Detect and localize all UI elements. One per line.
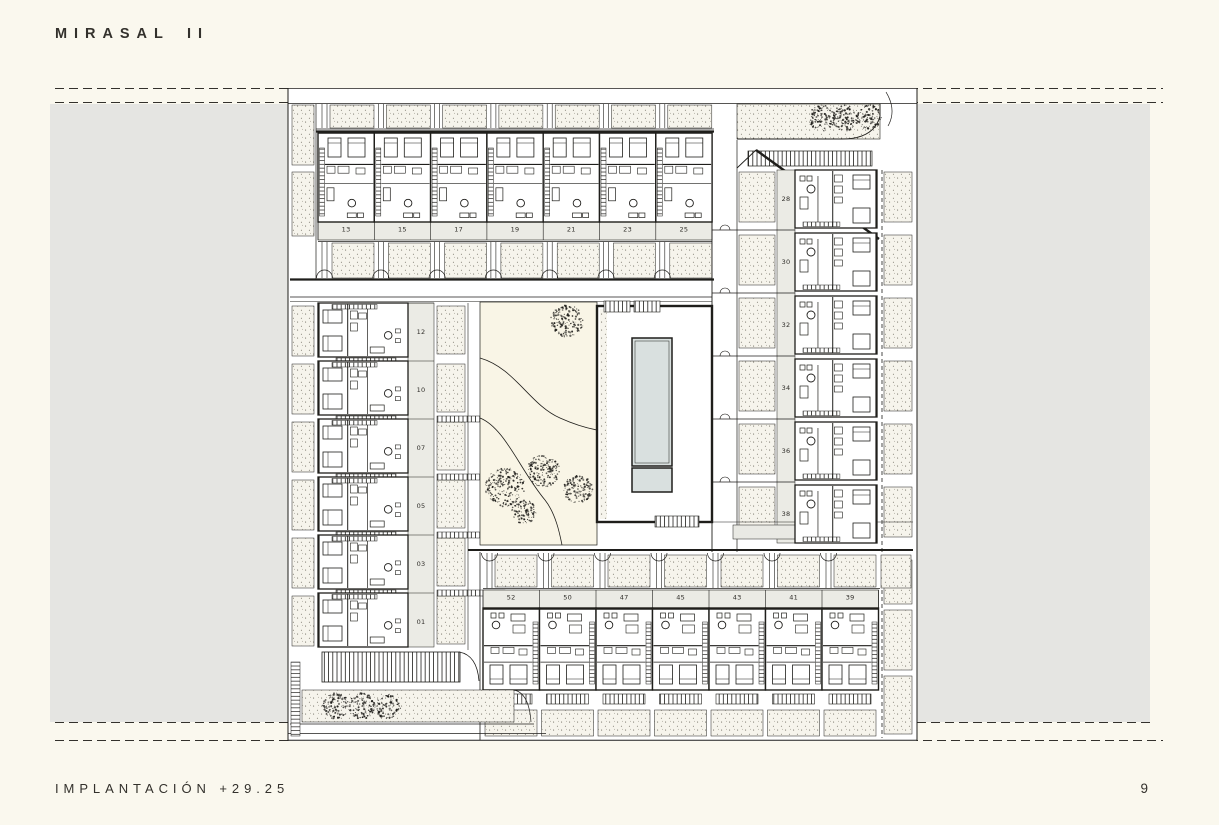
- unit-number-label: 45: [676, 594, 685, 602]
- garden-patch: [884, 361, 912, 411]
- unit-number-label: 52: [507, 594, 516, 602]
- garden-patch: [330, 105, 374, 128]
- garden-patch: [499, 105, 543, 128]
- stair-strip: [655, 516, 699, 527]
- garden-patch: [437, 480, 465, 528]
- unit-plan-41: [766, 608, 823, 690]
- unit-plan-07: [318, 419, 408, 473]
- swimming-pool: [632, 338, 672, 492]
- garden-patch: [665, 555, 707, 587]
- unit-plan-32: [795, 296, 877, 354]
- page-number: 9: [1118, 781, 1148, 796]
- garden-patch: [884, 676, 912, 734]
- unit-number-label: 43: [733, 594, 742, 602]
- unit-number-label: 01: [417, 618, 426, 626]
- garden-patch: [721, 555, 763, 587]
- stair-strip: [660, 694, 702, 704]
- unit-plan-21: [543, 132, 599, 222]
- courtyard: [480, 301, 712, 545]
- unit-plan-36: [795, 422, 877, 480]
- drawing-caption: IMPLANTACIÓN +29.25: [55, 781, 289, 796]
- garden-patch: [668, 105, 712, 128]
- unit-plan-34: [795, 359, 877, 417]
- unit-plan-43: [709, 608, 766, 690]
- garden-patch: [555, 105, 599, 128]
- garden-patch: [711, 710, 763, 736]
- garden-patch: [437, 422, 465, 470]
- unit-plan-23: [600, 132, 656, 222]
- unit-plan-52: [483, 608, 540, 690]
- garden-patch: [598, 710, 650, 736]
- garden-patch: [292, 596, 314, 646]
- unit-plan-05: [318, 477, 408, 531]
- garden-patch: [437, 596, 465, 644]
- garden-patch: [739, 424, 775, 474]
- unit-number-label: 50: [563, 594, 572, 602]
- garden-patch: [501, 243, 543, 278]
- unit-number-label: 03: [417, 560, 426, 568]
- page-title: MIRASAL II: [55, 26, 209, 42]
- garden-patch: [739, 172, 775, 222]
- garden-patch: [437, 538, 465, 586]
- unit-label-strip: [408, 303, 434, 647]
- unit-number-label: 05: [417, 502, 426, 510]
- unit-number-label: 07: [417, 444, 426, 452]
- garden-patch: [292, 172, 314, 236]
- unit-plan-15: [374, 132, 430, 222]
- unit-number-label: 41: [789, 594, 798, 602]
- garden-patch: [884, 235, 912, 285]
- garden-patch: [739, 298, 775, 348]
- unit-plan-03: [318, 535, 408, 589]
- unit-plan-28: [795, 170, 877, 228]
- garden-patch: [884, 487, 912, 537]
- garden-patch: [884, 424, 912, 474]
- garden-patch: [552, 555, 594, 587]
- garden-patch: [655, 710, 707, 736]
- garden-patch: [292, 538, 314, 588]
- unit-number-label: 36: [782, 447, 791, 455]
- unit-plan-01: [318, 593, 408, 647]
- unit-plan-47: [596, 608, 653, 690]
- unit-plan-45: [653, 608, 710, 690]
- garden-patch: [443, 105, 487, 128]
- garden-patch: [495, 555, 537, 587]
- garden-patch: [614, 243, 656, 278]
- site-plan-drawing: 1315171921232528303234363812100705030152…: [0, 0, 1219, 825]
- deck-stipple: [600, 309, 607, 519]
- garden-patch: [881, 555, 911, 588]
- unit-plan-39: [822, 608, 879, 690]
- unit-label-strip: [777, 170, 795, 543]
- unit-number-label: 13: [342, 226, 351, 234]
- unit-plan-13: [318, 132, 374, 222]
- garden-patch: [292, 422, 314, 472]
- garden-patch: [884, 298, 912, 348]
- unit-number-label: 21: [567, 226, 576, 234]
- garden-patch: [332, 243, 374, 278]
- garden-patch: [542, 710, 594, 736]
- garden-patch: [612, 105, 656, 128]
- stair-strip: [634, 301, 660, 312]
- garden-patch: [437, 306, 465, 354]
- unit-number-label: 28: [782, 195, 791, 203]
- unit-plan-12: [318, 303, 408, 357]
- stair-strip: [291, 662, 300, 736]
- garden-patch: [445, 243, 487, 278]
- stair-strip: [773, 694, 815, 704]
- garden-patch: [778, 555, 820, 587]
- unit-number-label: 39: [846, 594, 855, 602]
- garden-patch: [292, 306, 314, 356]
- garden-patch: [739, 361, 775, 411]
- unit-number-label: 15: [398, 226, 407, 234]
- unit-plan-38: [795, 485, 877, 543]
- garden-patch: [437, 364, 465, 412]
- unit-number-label: 38: [782, 510, 791, 518]
- garden-patch: [292, 105, 314, 165]
- stair-strip: [716, 694, 758, 704]
- garden-patch: [884, 172, 912, 222]
- garden-patch: [386, 105, 430, 128]
- garden-patch: [557, 243, 599, 278]
- parking-pergola: [322, 652, 460, 682]
- unit-plan-30: [795, 233, 877, 291]
- unit-number-label: 10: [417, 386, 426, 394]
- unit-number-label: 30: [782, 258, 791, 266]
- unit-number-label: 34: [782, 384, 791, 392]
- garden-patch: [834, 555, 876, 587]
- garden-patch: [292, 480, 314, 530]
- garden-patch: [739, 235, 775, 285]
- stair-strip: [829, 694, 871, 704]
- unit-number-label: 32: [782, 321, 791, 329]
- unit-plan-50: [540, 608, 597, 690]
- unit-plan-25: [656, 132, 712, 222]
- unit-number-label: 19: [511, 226, 520, 234]
- unit-number-label: 17: [454, 226, 463, 234]
- unit-number-label: 23: [623, 226, 632, 234]
- unit-plan-19: [487, 132, 543, 222]
- garden-patch: [824, 710, 876, 736]
- stair-strip: [603, 694, 645, 704]
- garden-patch: [768, 710, 820, 736]
- courtyard-garden: [480, 302, 597, 545]
- garden-patch: [292, 364, 314, 414]
- garden-patch: [608, 555, 650, 587]
- stair-strip: [604, 301, 630, 312]
- unit-number-label: 25: [679, 226, 688, 234]
- unit-plan-17: [431, 132, 487, 222]
- garden-patch: [670, 243, 712, 278]
- garden-patch: [388, 243, 430, 278]
- unit-number-label: 47: [620, 594, 629, 602]
- garden-patch: [884, 610, 912, 670]
- unit-number-label: 12: [417, 328, 426, 336]
- unit-plan-10: [318, 361, 408, 415]
- stair-strip: [547, 694, 589, 704]
